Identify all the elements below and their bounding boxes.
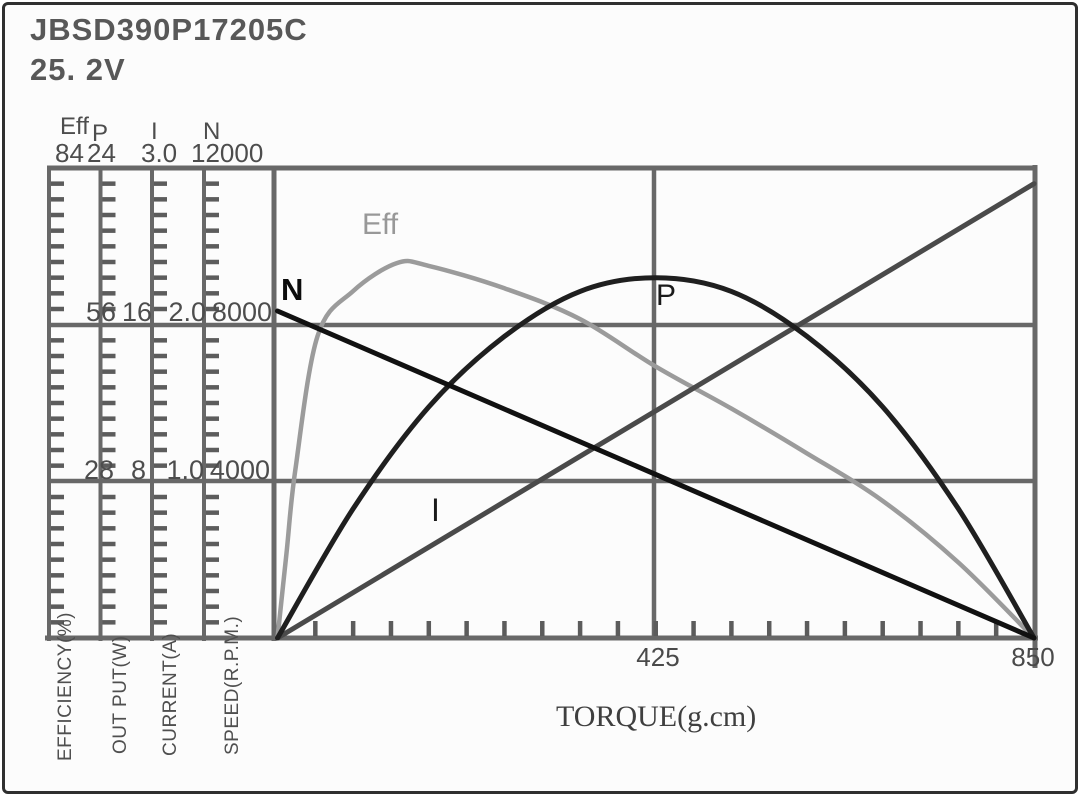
eff-tick-mid: 56 <box>60 297 116 328</box>
torque-tick-425: 425 <box>634 642 682 673</box>
power-curve-label: P <box>656 279 676 313</box>
voltage-title: 25. 2V <box>30 52 126 88</box>
current-axis-max: 3.0 <box>141 138 177 169</box>
power-tick-mid: 16 <box>110 297 152 328</box>
speed-tick-low: 4000 <box>196 455 270 486</box>
eff-curve-label: Eff <box>362 208 398 242</box>
power-tick-low: 8 <box>104 455 146 486</box>
power-axis-max: 24 <box>87 138 116 169</box>
speed-curve-label: N <box>281 272 303 308</box>
torque-axis-label: TORQUE(g.cm) <box>556 700 752 734</box>
efficiency-unit-label: EFFICIENCY(%) <box>55 645 77 761</box>
torque-tick-850: 850 <box>1009 642 1057 673</box>
current-curve-label: I <box>431 492 440 529</box>
current-unit-label: CURRENT(A) <box>160 640 182 756</box>
eff-axis-name: Eff <box>60 113 89 141</box>
speed-unit-label: SPEED(R.P.M.) <box>222 639 244 755</box>
eff-axis-max: 84 <box>55 138 84 169</box>
speed-axis-max: 12000 <box>191 138 263 169</box>
model-title: JBSD390P17205C <box>30 12 308 48</box>
chart-page: JBSD390P17205C 25. 2V Eff 84 P 24 I 3.0 … <box>0 0 1080 805</box>
speed-tick-mid: 8000 <box>198 297 272 328</box>
output-unit-label: OUT PUT(W) <box>110 638 132 754</box>
